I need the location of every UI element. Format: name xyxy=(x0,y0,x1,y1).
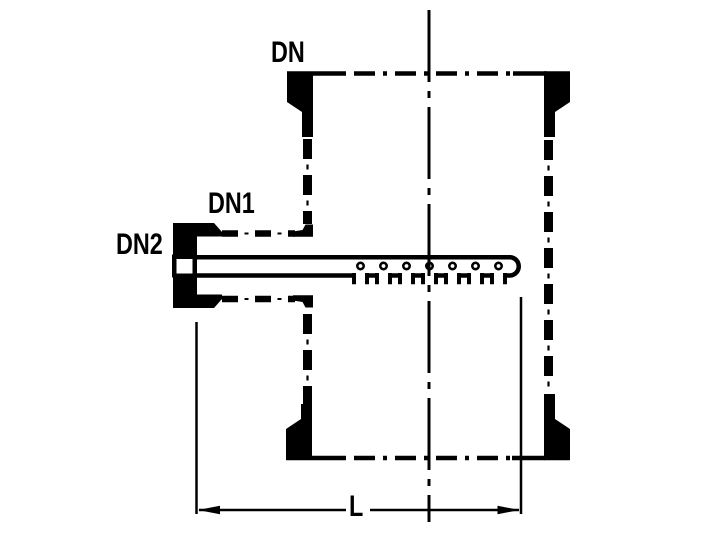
flange-neck-bottom xyxy=(196,295,222,309)
label-length-L: L xyxy=(349,492,367,522)
flange-top-right xyxy=(544,71,570,137)
arrowhead-left xyxy=(198,506,220,515)
flange-bottom-left xyxy=(286,404,312,460)
flange-bottom-right xyxy=(544,394,570,460)
flange-top-left xyxy=(287,71,313,137)
label-branch-dn1: DN1 xyxy=(208,189,268,219)
nozzle-weld-joints xyxy=(293,225,313,308)
bore-opening xyxy=(177,259,193,274)
flange-neck-top xyxy=(196,223,222,237)
arrowhead-right xyxy=(498,506,520,515)
drawing-geometry xyxy=(0,0,724,533)
weld-top xyxy=(293,225,313,237)
dimension-L xyxy=(197,297,522,514)
weld-bottom xyxy=(293,295,313,307)
probe-tube xyxy=(196,257,519,284)
nozzle-dn1-walls xyxy=(222,234,295,300)
label-pipe-dn: DN xyxy=(271,38,314,68)
technical-drawing-injection-quill: DN DN1 DN2 L xyxy=(0,0,724,533)
label-connection-dn2: DN2 xyxy=(116,230,176,260)
probe-flange-dn2 xyxy=(172,223,222,308)
